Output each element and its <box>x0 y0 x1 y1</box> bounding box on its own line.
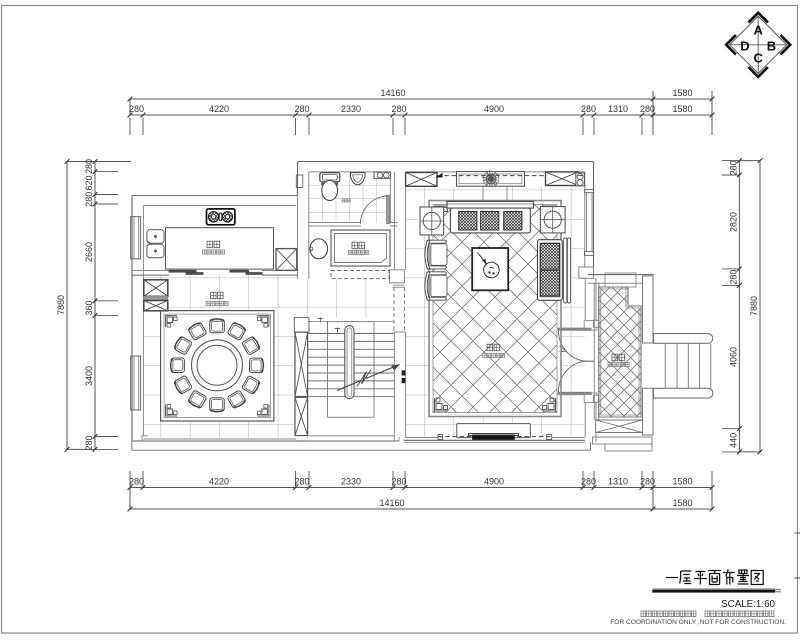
svg-text:2820: 2820 <box>728 212 738 232</box>
svg-text:280: 280 <box>84 159 94 174</box>
svg-text:280: 280 <box>294 104 309 114</box>
svg-text:1580: 1580 <box>672 104 692 114</box>
svg-text:2660: 2660 <box>84 242 94 262</box>
svg-text:SCALE:1:60: SCALE:1:60 <box>721 599 775 610</box>
svg-text:7880: 7880 <box>56 295 66 315</box>
svg-text:4220: 4220 <box>209 477 229 487</box>
svg-text:14160: 14160 <box>380 88 405 98</box>
svg-text:4060: 4060 <box>728 347 738 367</box>
svg-text:280: 280 <box>294 477 309 487</box>
svg-text:280: 280 <box>391 477 406 487</box>
svg-text:C: C <box>754 50 764 65</box>
svg-text:B: B <box>767 38 776 53</box>
svg-text:280: 280 <box>129 477 144 487</box>
svg-text:3400: 3400 <box>84 366 94 386</box>
svg-text:1580: 1580 <box>672 498 692 508</box>
svg-text:A: A <box>754 23 764 38</box>
svg-text:280: 280 <box>728 270 738 285</box>
svg-text:1310: 1310 <box>608 477 628 487</box>
svg-text:280: 280 <box>581 104 596 114</box>
svg-text:1580: 1580 <box>672 88 692 98</box>
svg-text:280: 280 <box>84 435 94 450</box>
svg-text:280: 280 <box>581 477 596 487</box>
svg-text:360: 360 <box>84 300 94 315</box>
svg-text:620: 620 <box>84 175 94 190</box>
svg-text:4900: 4900 <box>484 104 504 114</box>
svg-text:14160: 14160 <box>379 498 404 508</box>
svg-text:280: 280 <box>640 477 655 487</box>
svg-text:1580: 1580 <box>672 477 692 487</box>
svg-text:FOR COORDINATION ONLY ,NOT FOR: FOR COORDINATION ONLY ,NOT FOR CONSTRUCT… <box>610 619 786 626</box>
svg-text:4900: 4900 <box>484 477 504 487</box>
svg-text:280: 280 <box>728 160 738 175</box>
svg-text:4220: 4220 <box>209 104 229 114</box>
svg-text:280: 280 <box>391 104 406 114</box>
svg-text:280: 280 <box>84 192 94 207</box>
svg-text:2330: 2330 <box>341 104 361 114</box>
svg-text:280: 280 <box>640 104 655 114</box>
svg-text:280: 280 <box>129 104 144 114</box>
svg-text:2330: 2330 <box>341 477 361 487</box>
svg-text:7880: 7880 <box>749 296 759 316</box>
svg-text:1310: 1310 <box>608 104 628 114</box>
svg-text:440: 440 <box>728 433 738 448</box>
svg-text:D: D <box>740 38 749 53</box>
